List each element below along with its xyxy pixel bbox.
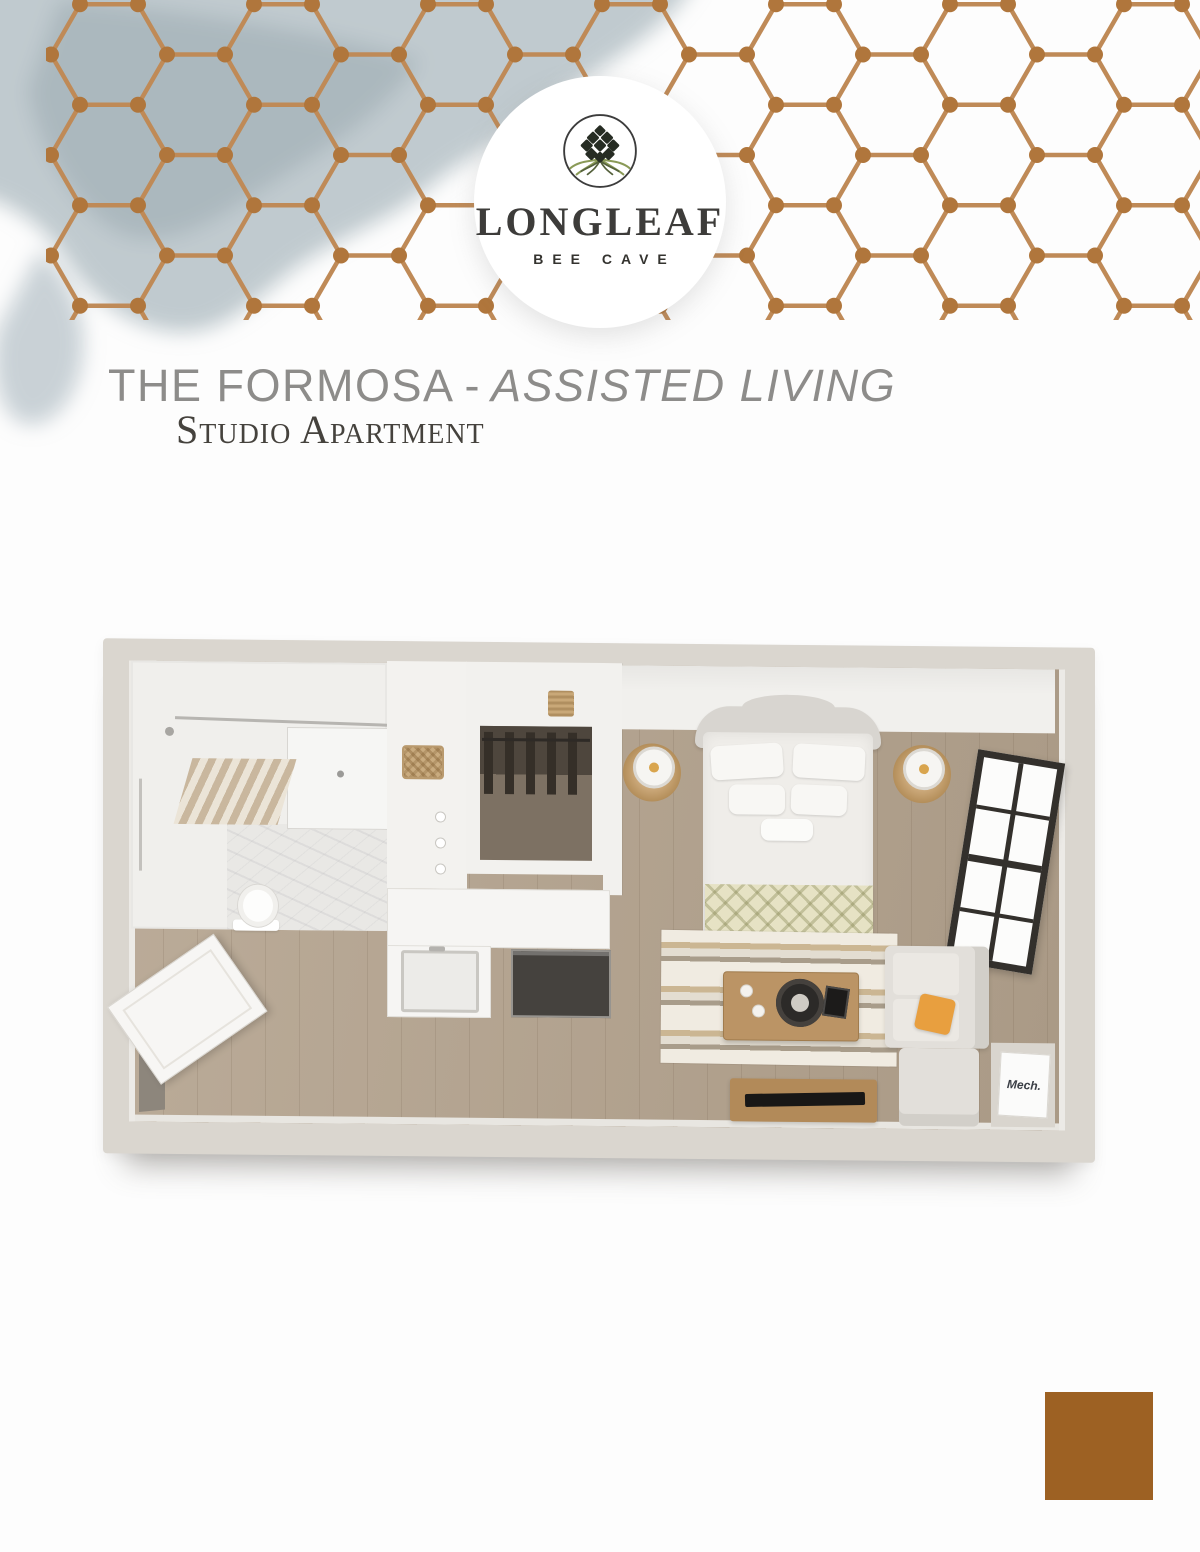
brand-square [1045,1392,1153,1500]
logo-title: LONGLEAF [476,198,724,245]
title-dash: - [465,360,482,411]
nightstand-lamp-left [633,746,675,788]
coffee-table-tray [776,979,824,1027]
vanity-knob [435,811,446,822]
bathroom [131,661,387,931]
kitchen-faucet [429,946,445,951]
kitchenette [387,888,608,1017]
vanity-knob [435,863,446,874]
toilet [237,884,279,928]
sofa-cushion [893,953,959,996]
logo-badge: LONGLEAF BEE CAVE [474,76,726,328]
vanity-counter [387,661,467,889]
shower-drain [337,770,344,777]
logo-subtitle: BEE CAVE [524,251,676,267]
bed-pillow [790,784,847,816]
title-qualifier: ASSISTED LIVING [491,360,896,411]
vanity-basket [402,745,444,779]
mech-closet-door: Mech. [997,1052,1050,1119]
mech-closet: Mech. [991,1043,1055,1128]
shower-curtain-rod [175,716,387,727]
decor-frame [822,986,850,1019]
mech-label: Mech. [1007,1077,1042,1093]
closet-interior [480,726,592,861]
bed-pillow [792,743,866,781]
shower-pan [287,727,389,830]
kitchen-sink [401,950,479,1013]
shower-head [165,727,174,736]
kitchen-counter [387,888,610,949]
tv-console [730,1078,877,1122]
closet-wall [603,663,622,895]
under-counter-appliance [511,949,611,1018]
coffee-table [723,971,859,1041]
title-main: THE FORMOSA [108,360,455,411]
page-subtitle: Studio Apartment [176,406,485,453]
sofa-pillow-orange [914,993,957,1036]
vanity-knob [435,837,446,848]
bed-pillow [710,742,784,780]
floorplan-render: Mech. [103,638,1095,1163]
brochure-page: LONGLEAF BEE CAVE THE FORMOSA-ASSISTED L… [0,0,1200,1552]
shower-bench [174,758,297,825]
bed-pillow [761,819,813,841]
nightstand-lamp-right [903,748,945,790]
grab-bar [139,779,142,871]
closet-basket [548,691,574,717]
sofa-chaise [899,1048,979,1127]
tv-screen [745,1092,865,1107]
bed-pillow [729,784,785,815]
decor-cup [752,1004,765,1017]
closet [466,662,603,875]
pinecone-icon [561,112,639,190]
page-title: THE FORMOSA-ASSISTED LIVING [108,360,896,412]
decor-cup [740,984,753,997]
